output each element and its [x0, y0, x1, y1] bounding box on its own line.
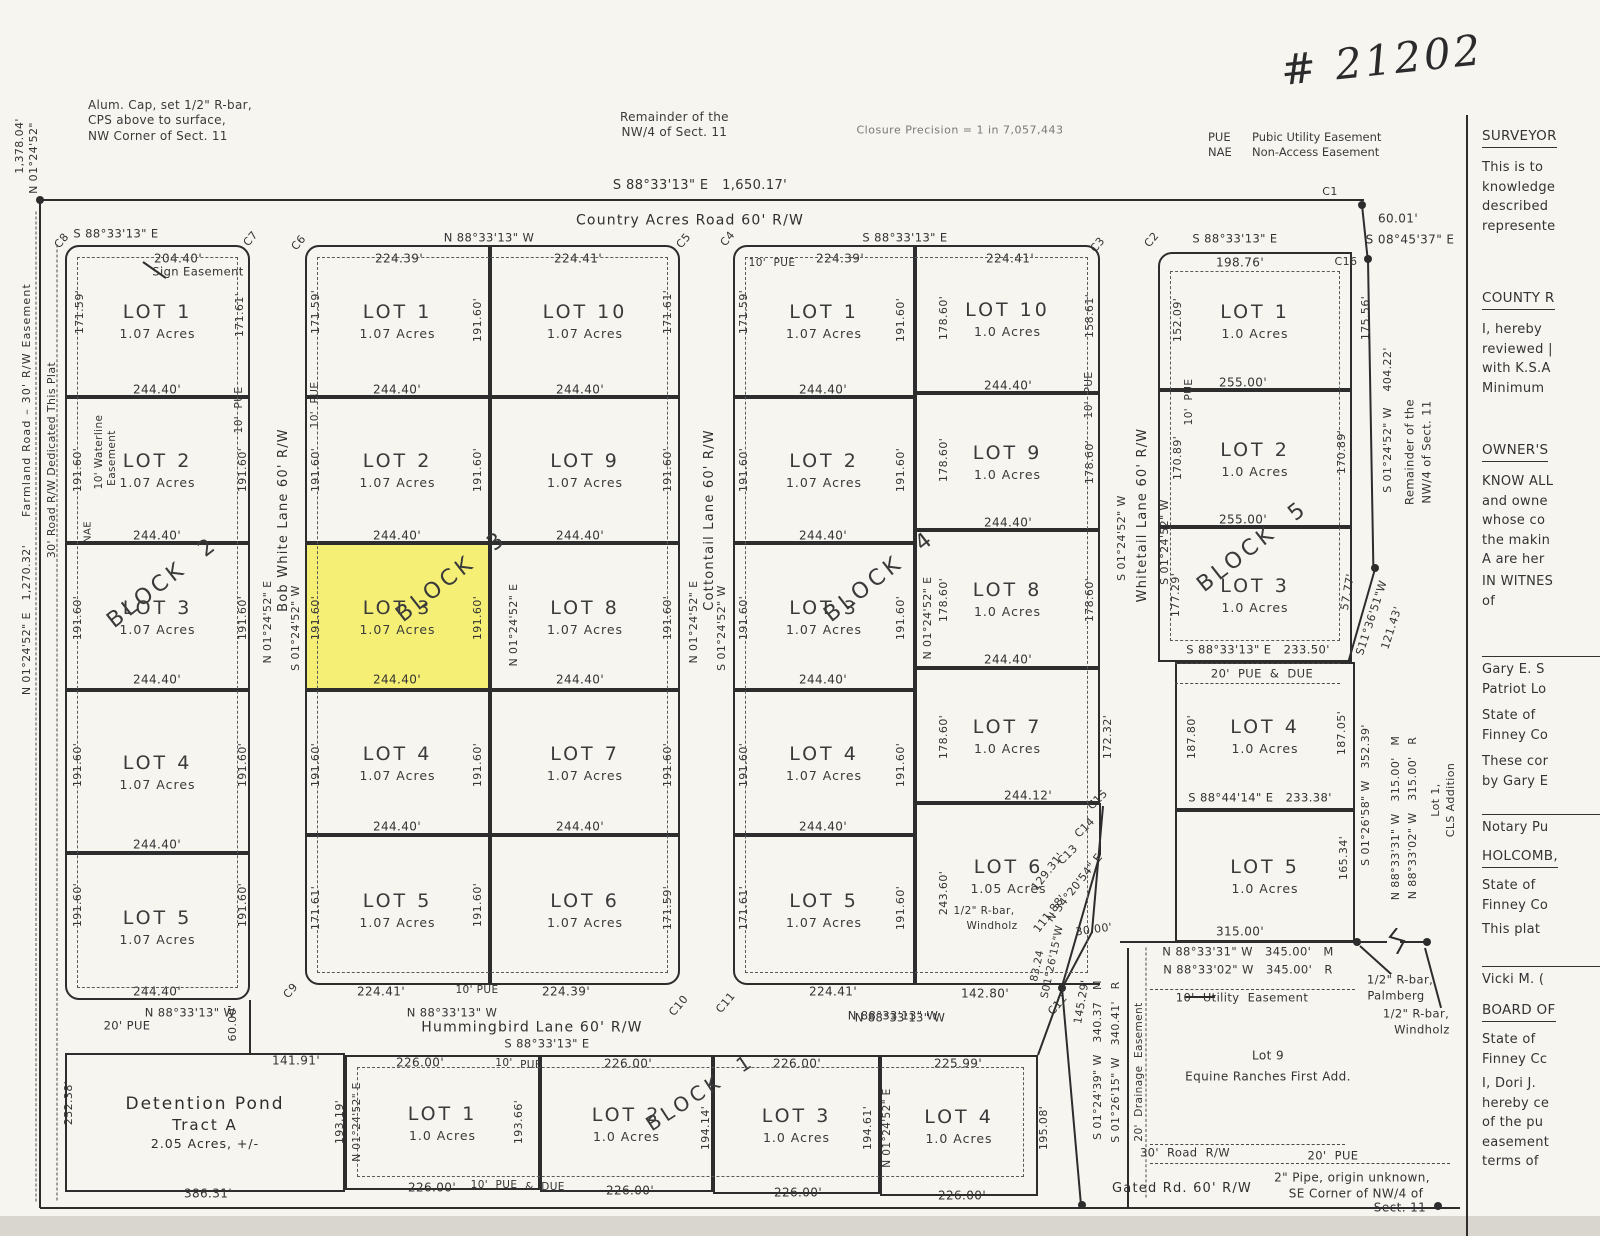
road-gated: Gated Rd. 60' R/W [1112, 1182, 1252, 1196]
survey-monument-dot [1423, 938, 1431, 946]
annotation-label: C4 [718, 229, 737, 249]
boundary-line [39, 200, 41, 1208]
sidebar-text: I, herebyreviewed |with K.S.AMinimum [1482, 320, 1600, 398]
tract-subtitle: Tract A [172, 1116, 237, 1134]
annotation-label: Lot 9 [1252, 1049, 1284, 1062]
sidebar-line: Patriot Lo [1482, 680, 1600, 700]
sidebar-text: This plat [1482, 920, 1600, 940]
annotation-label: 141.91' [272, 1054, 320, 1067]
easement-dashed-line [1150, 1163, 1450, 1164]
annotation-label: 191.60' [237, 596, 249, 640]
annotation-label: 172.32' [1102, 715, 1114, 759]
annotation-label: 20' PUE [104, 1020, 151, 1033]
sidebar-heading: HOLCOMB, [1482, 846, 1600, 868]
annotation-label: 252.38' [63, 1081, 75, 1125]
annotation-label: C2 [1142, 230, 1161, 250]
sidebar-heading: OWNER'S [1482, 440, 1600, 462]
sidebar-text: Vicki M. ( [1482, 966, 1600, 990]
sidebar-heading: COUNTY R [1482, 288, 1600, 310]
sidebar-line: Notary Pu [1482, 818, 1600, 838]
annotation-label: N 88°33'02" W 345.00' R [1163, 964, 1333, 977]
sidebar-text: This is toknowledgedescribedrepresente [1482, 158, 1600, 236]
setback-dashed-rect [77, 257, 238, 988]
sidebar-heading-text: OWNER'S [1482, 440, 1548, 462]
boundary-line [40, 1207, 1460, 1209]
sidebar-heading: BOARD OF [1482, 1000, 1600, 1022]
annotation-label: 224.41' [809, 985, 857, 998]
survey-monument-dot [36, 196, 44, 204]
annotation-label: 1,378.04' [14, 118, 26, 174]
annotation-label: Remainder of the [1404, 399, 1417, 505]
scan-edge-shadow [0, 1216, 1600, 1236]
sidebar-heading-text: COUNTY R [1482, 288, 1555, 310]
annotation-label: 224.41' [357, 985, 405, 998]
annotation-label: Windholz [1394, 1024, 1450, 1037]
boundary-line [40, 199, 1364, 201]
annotation-label: N 88°33'31" W 345.00' M [1162, 946, 1333, 959]
annotation-label: 20' PUE & DUE [1211, 668, 1313, 681]
annotation-label: 226.00' [938, 1189, 986, 1202]
sidebar-line: knowledge [1482, 178, 1600, 198]
annotation-label: C10 [667, 993, 691, 1018]
nw-corner-note: Alum. Cap, set 1/2" R-bar, CPS above to … [88, 98, 252, 144]
annotation-label: CLS Addition [1445, 763, 1457, 838]
sidebar-line: and owne [1482, 492, 1600, 512]
sidebar-line: represente [1482, 217, 1600, 237]
annotation-label: C7 [241, 229, 260, 249]
annotation-label: N 01°24'52" E [688, 581, 700, 664]
road-farmland: Farmland Road – 30' R/W Easement [21, 283, 33, 517]
annotation-label: S 88°33'13" E 233.50' [1186, 644, 1330, 657]
boundary-line [249, 1000, 251, 1053]
sidebar-line: This plat [1482, 920, 1600, 940]
easement-dashed-line [36, 212, 37, 1202]
sidebar-line: Minimum [1482, 379, 1600, 399]
legend-label: Non-Access Easement [1252, 145, 1379, 160]
lot-label: LOT 5 [1230, 856, 1300, 878]
annotation-label: 142.80' [961, 987, 1009, 1000]
closure-precision-note: Closure Precision = 1 in 7,057,443 [856, 124, 1063, 137]
legend-row: NAE Non-Access Easement [1208, 145, 1381, 160]
sidebar-line: the makin [1482, 531, 1600, 551]
lot-block5-lot5: LOT 51.0 Acres [1175, 810, 1355, 942]
annotation-label: S 88°33'13" E [504, 1038, 589, 1051]
boundary-line [1120, 941, 1357, 943]
annotation-label: S 01°24'52" W [716, 585, 728, 671]
annotation-label: C6 [289, 233, 308, 253]
easement-dashed-line [1175, 683, 1340, 684]
boundary-line [1357, 941, 1387, 943]
sidebar-text: KNOW ALLand ownewhose cothe makinA are h… [1482, 472, 1600, 570]
annotation-label: S 01°24'39" W 340.37 M [1092, 980, 1104, 1140]
annotation-label: S 01°26'58" W 352.39' [1360, 724, 1372, 866]
annotation-label: S 88°33'13" E 1,650.17' [613, 179, 787, 193]
sidebar-line: terms of [1482, 1152, 1600, 1172]
annotation-label: 1/2" R-bar, [1367, 974, 1433, 987]
road-whitetail: Whitetail Lane 60' R/W [1136, 428, 1150, 603]
detention-pond-tract: Detention Pond Tract A 2.05 Acres, +/- [65, 1053, 345, 1192]
sidebar-line: State of [1482, 1030, 1600, 1050]
annotation-label: N 88°33'13" W [145, 1007, 236, 1020]
annotation-label: 226.00' [606, 1184, 654, 1197]
lot-acres: 1.0 Acres [1231, 881, 1298, 896]
annotation-label: 191.60' [237, 448, 249, 492]
annotation-label: 187.05' [1336, 711, 1348, 755]
setback-dashed-rect [357, 1067, 1024, 1177]
remainder-note: Remainder of the NW/4 of Sect. 11 [620, 110, 729, 141]
annotation-label: S 01°24'52" W [1116, 495, 1128, 581]
annotation-label: C16 [1335, 256, 1358, 268]
annotation-label: 198.76' [1216, 256, 1264, 269]
sidebar-text: I, Dori J.hereby ceof the pueasementterm… [1482, 1074, 1600, 1172]
sidebar-heading: SURVEYOR [1482, 126, 1600, 148]
survey-monument-dot [1058, 984, 1066, 992]
sidebar-text: State ofFinney Cc [1482, 1030, 1600, 1069]
annotation-label: 145.29' [1072, 979, 1092, 1025]
easement-dashed-line [1150, 989, 1355, 990]
road-country-acres: Country Acres Road 60' R/W [576, 213, 804, 228]
survey-monument-dot [1353, 938, 1361, 946]
sidebar-line: State of [1482, 876, 1600, 896]
tract-title: Detention Pond [125, 1094, 284, 1114]
annotation-label: C5 [674, 231, 693, 251]
boundary-line [1127, 948, 1129, 1208]
annotation-label: S 01°24'52" W [290, 585, 302, 671]
annotation-label: C9 [281, 981, 300, 1001]
annotation-label: N 88°33'13" W [444, 232, 535, 245]
sidebar-line: Gary E. S [1482, 660, 1600, 680]
annotation-label: N 01°24'52" [28, 122, 40, 194]
sidebar-line: A are her [1482, 550, 1600, 570]
annotation-label: NW/4 of Sect. 11 [1421, 400, 1434, 503]
annotation-label: Equine Ranches First Add. [1185, 1070, 1351, 1083]
sidebar-text: Gary E. SPatriot Lo [1482, 656, 1600, 699]
sidebar-line: with K.S.A [1482, 359, 1600, 379]
annotation-label: S 01°24'52" W 404.22' [1382, 347, 1394, 493]
sidebar-line: Finney Cc [1482, 1050, 1600, 1070]
legend: PUE Pubic Utility Easement NAE Non-Acces… [1208, 130, 1381, 160]
lot-label: LOT 4 [1230, 716, 1300, 738]
annotation-label: 30' Road R/W [1140, 1147, 1230, 1160]
sidebar-line: State of [1482, 706, 1600, 726]
survey-monument-dot [1078, 1201, 1086, 1209]
annotation-label: 60.01' [1378, 212, 1418, 225]
survey-monument-dot [1434, 1202, 1442, 1210]
annotation-label: 191.60' [237, 883, 249, 927]
annotation-label: 10' PUE [455, 985, 498, 997]
annotation-label: N 88°33'31" W 315.00' M [1390, 736, 1402, 900]
annotation-label: 191.60' [237, 743, 249, 787]
sidebar-text: IN WITNESof [1482, 572, 1600, 611]
annotation-label: N 01°24'52" E 1,270.32' [21, 545, 33, 695]
annotation-label: 315.00' [1216, 925, 1264, 938]
sidebar-line: of the pu [1482, 1113, 1600, 1133]
annotation-label: C1 [1322, 186, 1337, 198]
sidebar-heading-text: BOARD OF [1482, 1000, 1556, 1022]
plat-number-handwritten: # 21202 [1278, 25, 1485, 95]
annotation-label: 226.00' [774, 1186, 822, 1199]
legend-label: Pubic Utility Easement [1252, 130, 1381, 145]
sidebar-line: by Gary E [1482, 772, 1600, 792]
sidebar-heading-text: SURVEYOR [1482, 126, 1557, 148]
lot-acres: 1.0 Acres [1231, 741, 1298, 756]
sidebar-line: hereby ce [1482, 1094, 1600, 1114]
survey-monument-dot [1358, 201, 1366, 209]
easement-dashed-line [1150, 1144, 1345, 1145]
annotation-label: S 88°44'14" E 233.38' [1188, 792, 1332, 805]
sidebar-line: Vicki M. ( [1482, 970, 1600, 990]
annotation-label: 60.00' [227, 1005, 239, 1042]
sidebar-line: Finney Co [1482, 896, 1600, 916]
annotation-label: 10' PUE [471, 1180, 518, 1192]
annotation-label: 386.31' [184, 1187, 232, 1200]
boundary-line [1185, 996, 1215, 998]
legend-abbr: PUE [1208, 130, 1238, 145]
legend-abbr: NAE [1208, 145, 1238, 160]
annotation-label: 1/2" R-bar, [1383, 1008, 1449, 1021]
annotation-label: 226.00' [408, 1181, 456, 1194]
annotation-label: N 01°24'52" E [262, 581, 274, 664]
sidebar-line: reviewed | [1482, 340, 1600, 360]
sidebar-line: of [1482, 592, 1600, 612]
sidebar-line: Finney Co [1482, 726, 1600, 746]
sidebar-line: I, Dori J. [1482, 1074, 1600, 1094]
sidebar-line: described [1482, 197, 1600, 217]
annotation-label: 20' PUE [1308, 1150, 1359, 1163]
annotation-label: S 01°26'15" W 340.41' R [1110, 981, 1122, 1142]
sidebar-line: IN WITNES [1482, 572, 1600, 592]
annotation-label: 193.19' [334, 1100, 346, 1144]
annotation-label: S 88°33'13" E [1192, 233, 1277, 246]
annotation-label: & DUE [525, 1182, 565, 1194]
sidebar-heading-text: HOLCOMB, [1482, 846, 1558, 868]
annotation-label: 10' Utility Easement [1176, 992, 1309, 1005]
annotation-label: N 88°33'02" W 315.00' R [1407, 737, 1419, 900]
annotation-label: S 08°45'37" E [1366, 233, 1455, 246]
tract-acres: 2.05 Acres, +/- [151, 1136, 259, 1151]
setback-dashed-rect [317, 257, 668, 973]
sidebar-line: These cor [1482, 752, 1600, 772]
setback-dashed-rect [1170, 271, 1340, 641]
annotation-label: C11 [714, 990, 738, 1015]
annotation-label: 165.34' [1338, 836, 1350, 880]
sidebar-line: This is to [1482, 158, 1600, 178]
annotation-label: 121.43' [1379, 605, 1404, 651]
sidebar-text: These corby Gary E [1482, 752, 1600, 791]
annotation-label: 2" Pipe, origin unknown, [1274, 1171, 1430, 1184]
annotation-label: Palmberg [1367, 990, 1424, 1003]
legend-row: PUE Pubic Utility Easement [1208, 130, 1381, 145]
boundary-line [1466, 115, 1468, 1236]
annotation-label: S 88°33'13" E [73, 228, 158, 241]
sidebar-text: Notary Pu [1482, 814, 1600, 838]
sidebar-text: State ofFinney Co [1482, 876, 1600, 915]
sidebar-line: whose co [1482, 511, 1600, 531]
easement-dashed-line [1175, 663, 1340, 664]
annotation-label: Lot 1, [1430, 783, 1442, 816]
plat-document: # 21202 Alum. Cap, set 1/2" R-bar, CPS a… [0, 0, 1600, 1236]
annotation-label: 20' Drainage Easement [1134, 1002, 1146, 1141]
sidebar-text: State ofFinney Co [1482, 706, 1600, 745]
setback-dashed-rect [745, 257, 1088, 973]
annotation-label: S 88°33'13" E [862, 232, 947, 245]
annotation-label: 224.39' [542, 985, 590, 998]
road-cottontail: Cottontail Lane 60' R/W [703, 429, 717, 611]
sidebar-line: I, hereby [1482, 320, 1600, 340]
annotation-label: 187.80' [1186, 715, 1198, 759]
lot-block5-lot4: LOT 41.0 Acres [1175, 662, 1355, 810]
easement-dashed-line [1146, 948, 1147, 1198]
survey-monument-dot [1364, 255, 1372, 263]
survey-monument-dot [1371, 564, 1379, 572]
easement-dashed-line [57, 245, 58, 1201]
annotation-label: SE Corner of NW/4 of [1289, 1187, 1423, 1200]
sidebar-line: easement [1482, 1133, 1600, 1153]
road-hummingbird: Hummingbird Lane 60' R/W [421, 1020, 642, 1035]
annotation-label: N 88°33'13" W [848, 1010, 939, 1023]
annotation-label: 195.08' [1038, 1106, 1050, 1150]
sidebar-line: KNOW ALL [1482, 472, 1600, 492]
annotation-label: N 88°33'13" W [407, 1007, 498, 1020]
